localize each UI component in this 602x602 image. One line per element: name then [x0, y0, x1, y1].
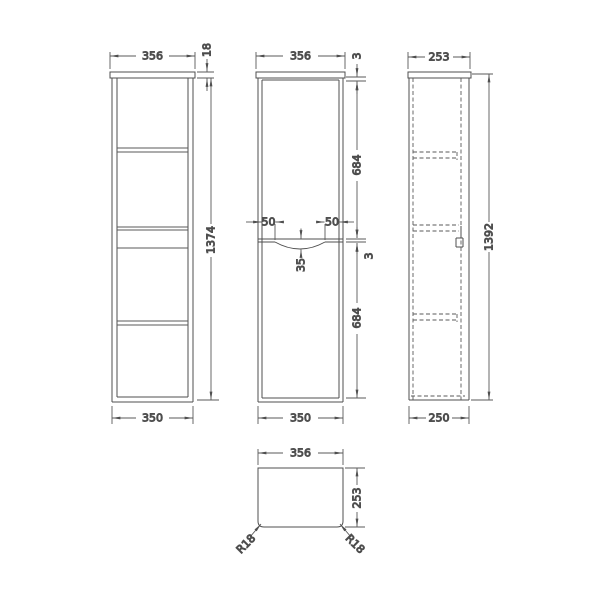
plan-view: 356 253 R18 R18	[234, 447, 367, 557]
dim-front-doors-width-bottom: 350	[290, 412, 311, 425]
dim-front-doors-width-top: 356	[290, 50, 311, 63]
dim-front-open-width-top: 356	[142, 50, 163, 63]
front-doors-view: 356 3 684 3 684 50 50 35	[246, 50, 376, 425]
hidden-shelf-middle	[413, 225, 459, 231]
extension-lines	[197, 72, 214, 78]
top-panel	[110, 72, 195, 78]
front-open-view: 356 18 1374 350	[110, 43, 219, 425]
plan-outline	[258, 468, 343, 527]
carcass-inner-lines	[117, 78, 188, 397]
extension-lines	[346, 77, 366, 81]
extension-lines	[346, 239, 366, 242]
dim-front-open-height: 1374	[205, 226, 218, 254]
dim-front-doors-door-gap: 3	[363, 253, 376, 260]
hidden-shelf-bottom	[413, 314, 457, 322]
handle-profile	[456, 226, 463, 247]
top-panel	[408, 72, 471, 78]
side-view: 253 1392 250	[408, 51, 496, 425]
dim-plan-depth: 253	[351, 488, 364, 509]
dim-side-overall-height: 1392	[483, 223, 496, 251]
dim-side-depth-bottom: 250	[429, 412, 450, 425]
dim-plan-width: 356	[290, 447, 311, 460]
dim-front-open-width-bottom: 350	[142, 412, 163, 425]
dim-front-doors-lower-door: 684	[351, 308, 364, 329]
dim-front-doors-handle-recess: 35	[295, 258, 308, 272]
top-panel	[256, 72, 345, 78]
carcass-outline	[258, 78, 343, 402]
cabinet-drawing-svg: 356 18 1374 350 356 3 684	[0, 0, 602, 602]
dim-front-doors-top-gap: 3	[351, 53, 364, 60]
handle-recess-arc	[258, 242, 343, 249]
shelf-lines	[117, 148, 188, 325]
dim-front-doors-upper-door: 684	[351, 155, 364, 176]
dim-front-doors-handle-inset-left: 50	[262, 216, 276, 229]
dim-plan-radius-right: R18	[343, 532, 367, 556]
side-outline	[409, 78, 469, 400]
hidden-panel-lines	[413, 78, 461, 400]
dim-side-depth-top: 253	[429, 51, 450, 64]
dim-plan-radius-left: R18	[234, 532, 258, 556]
dim-front-open-top-thickness: 18	[201, 43, 214, 57]
technical-drawing-canvas: 356 18 1374 350 356 3 684	[0, 0, 602, 602]
carcass-outline	[112, 78, 193, 402]
hidden-shelf-top	[413, 152, 457, 160]
dim-front-doors-handle-inset-right: 50	[325, 216, 339, 229]
